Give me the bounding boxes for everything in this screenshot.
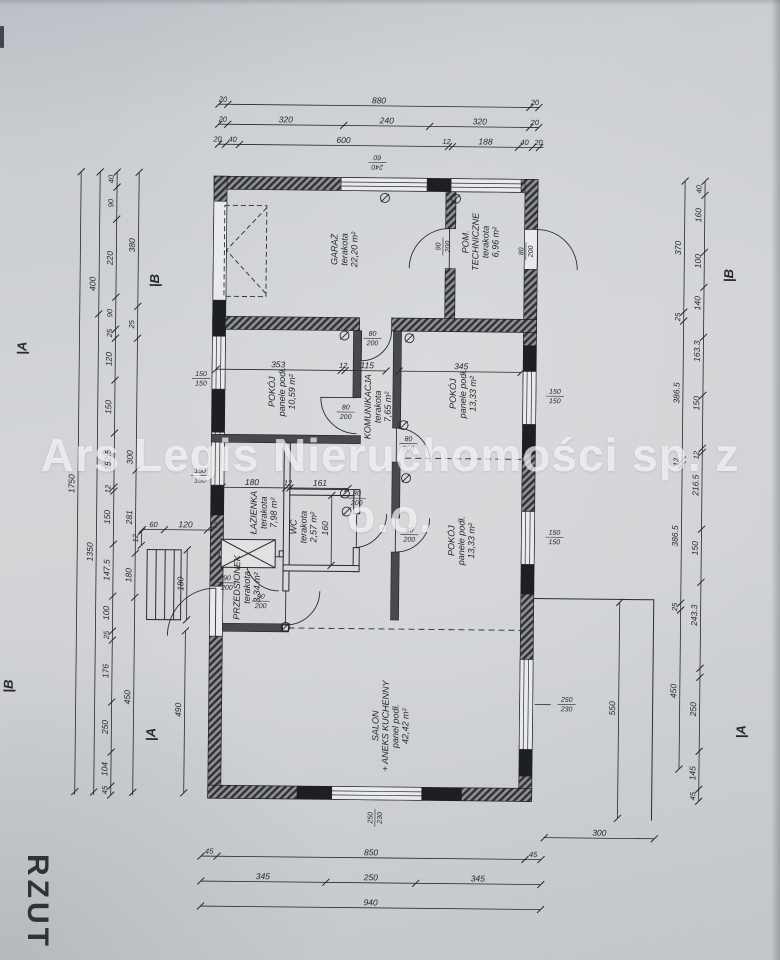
opening-size-top: 80 [342, 404, 350, 411]
section-marker: |B [721, 269, 736, 282]
dim-label: 45 [100, 785, 109, 794]
dim-label: 188 [478, 136, 493, 146]
dim-label: 40 [228, 135, 237, 144]
dim-label: 450 [668, 684, 678, 699]
dim-label: 90 [106, 198, 115, 207]
dim-label: 12 [131, 533, 140, 542]
dim-label: 850 [364, 847, 379, 857]
dim-label: 220 [105, 251, 115, 267]
opening-size-bottom: 150 [548, 539, 560, 546]
dim-label: 300 [125, 450, 135, 465]
dim-label: 12 [103, 484, 112, 493]
section-marker: |B [1, 679, 16, 692]
dim-label: 160 [693, 208, 703, 223]
dim-label: 161 [313, 478, 328, 488]
opening-size-bottom: 60 [373, 153, 381, 160]
photo-corner-artifact [0, 26, 4, 48]
opening-size-bottom: 200 [350, 500, 363, 507]
opening-size-bottom: 200 [445, 241, 452, 254]
dim-label: 180 [245, 477, 260, 487]
dim-label: 250 [688, 702, 698, 718]
dim-label: 60 [149, 520, 158, 529]
dim-label: 90 [105, 308, 114, 317]
dim-label: 120 [104, 352, 114, 367]
opening-size-bottom: 200 [366, 340, 379, 347]
opening-size-top: 150 [195, 371, 207, 378]
dim-label: 400 [87, 276, 97, 291]
dim-label: 320 [473, 116, 488, 126]
dim-label: 320 [279, 114, 294, 124]
opening-size-top: 80 [406, 527, 414, 534]
dim-label: 386.5 [670, 525, 680, 547]
dim-label: 386.5 [671, 382, 681, 404]
dim-label: 20 [530, 118, 540, 127]
dim-label: 150 [102, 510, 112, 525]
dim-label: 150 [690, 541, 700, 556]
dim-label: 163.3 [692, 340, 702, 362]
opening-size-top: 90 [223, 575, 231, 582]
opening-size-bottom: 150 [195, 380, 207, 387]
opening-size-bottom: 200 [402, 537, 415, 544]
dim-label: 180 [123, 568, 133, 583]
dim-label: 12 [442, 137, 451, 146]
dim-label: 12 [672, 457, 681, 466]
dim-label: 281 [124, 510, 134, 526]
dim-label: 12 [284, 478, 293, 487]
paper-grain-texture [0, 0, 780, 960]
dim-label: 40 [520, 138, 529, 147]
dim-label: 880 [372, 95, 387, 105]
opening-size-top: 80 [369, 331, 377, 338]
opening-size-bottom: 230 [377, 812, 384, 825]
opening-size-top: 80 [518, 247, 525, 255]
dim-label: 120 [178, 519, 193, 529]
opening-size-top: 80 [404, 436, 412, 443]
drawing-title-rzut: RZUT [20, 854, 54, 950]
dim-label: 145 [687, 766, 697, 781]
photographed-floorplan: 2088020203202403202020406001218840204585… [0, 0, 780, 960]
dim-label: 25 [127, 319, 136, 329]
dim-label: 180 [175, 576, 185, 591]
opening-size-top: 240 [371, 163, 384, 170]
dim-label: 345 [256, 871, 271, 881]
dim-label: 25 [102, 630, 111, 640]
dim-label: 152.5 [103, 449, 113, 471]
dim-label: 250 [363, 872, 379, 882]
opening-size-bottom: 200 [401, 446, 414, 453]
dim-label: 12 [209, 521, 218, 530]
opening-size-bottom: 150 [194, 477, 206, 484]
dim-label: 1750 [66, 474, 76, 493]
dim-label: 216.5 [690, 474, 700, 497]
section-marker: |A [143, 728, 158, 741]
dim-label: 150 [691, 396, 701, 411]
opening-size-top: 150 [549, 389, 561, 396]
dim-label: 450 [122, 690, 132, 705]
opening-size-top: 90 [435, 242, 442, 250]
dim-label: 550 [607, 701, 617, 716]
floorplan-drawing: 2088020203202403202020406001218840204585… [0, 0, 780, 960]
dim-label: 140 [692, 296, 702, 311]
section-marker: |A [14, 342, 29, 355]
dim-label: 100 [693, 254, 703, 269]
opening-size-bottom: 230 [560, 706, 573, 713]
dim-label: 40 [695, 184, 704, 193]
dim-label: 25 [105, 328, 114, 338]
dim-label: 20 [218, 115, 228, 124]
room-label: GARAŻterakota22,20 m² [329, 231, 359, 269]
opening-size-top: 80 [353, 491, 361, 498]
opening-size-top: 150 [549, 530, 561, 537]
opening-size-top: 150 [194, 468, 206, 475]
dim-label: 45 [688, 791, 697, 800]
opening-size-bottom: 150 [549, 398, 561, 405]
dim-label: 490 [173, 702, 183, 717]
dim-label: 345 [471, 873, 486, 883]
dim-label: 115 [360, 360, 374, 370]
opening-size-top: 250 [367, 812, 374, 825]
opening-size-bottom: 200 [254, 603, 267, 610]
dim-label: 40 [107, 174, 116, 183]
section-marker: |B [147, 274, 162, 287]
dim-label: 600 [336, 135, 351, 145]
photo-edge-shadow-right [771, 0, 780, 960]
dim-label: 20 [218, 95, 228, 104]
dim-label: 100 [101, 606, 111, 621]
dim-label: 20 [530, 98, 540, 107]
opening-size-bottom: 200 [339, 414, 352, 421]
opening-size-bottom: 200 [528, 245, 535, 258]
dim-label: 160 [320, 521, 330, 536]
dim-label: 300 [592, 828, 607, 838]
dim-label: 250 [100, 720, 110, 736]
dim-label: 370 [673, 241, 683, 256]
dim-label: 104 [99, 762, 109, 777]
dim-label: 45 [529, 850, 538, 859]
dim-label: 150 [103, 400, 113, 415]
dim-label: 25 [673, 312, 682, 322]
dim-label: 380 [127, 238, 137, 253]
opening-size-top: 250 [560, 697, 573, 704]
chimney-shaft [221, 539, 275, 568]
section-marker: |A [733, 725, 748, 738]
dim-label: 940 [363, 897, 378, 907]
dim-label: 176 [100, 664, 110, 679]
dim-label: 12 [339, 361, 348, 370]
dim-label: 243.3 [689, 604, 699, 627]
dim-label: 20 [533, 138, 543, 147]
dim-label: 12 [692, 450, 701, 459]
dim-label: 240 [379, 115, 395, 125]
dim-label: 25 [670, 602, 679, 612]
dim-label: 147.5 [101, 559, 111, 581]
dim-label: 45 [205, 847, 214, 856]
dim-label: 1350 [85, 542, 95, 561]
dim-label: 20 [212, 135, 222, 144]
